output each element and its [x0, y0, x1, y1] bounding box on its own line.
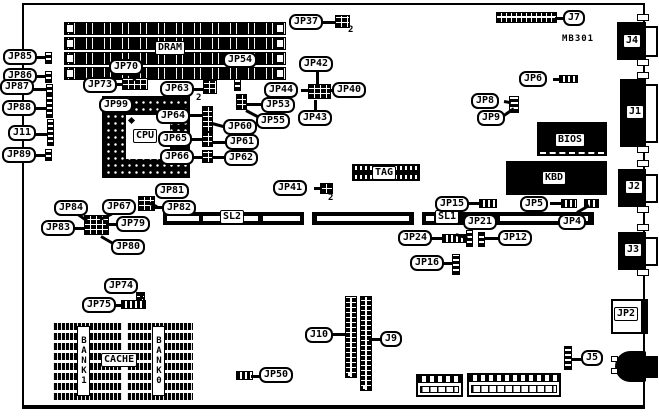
label-jp65: JP65: [158, 131, 192, 147]
label-jp41: JP41: [273, 180, 307, 196]
label-jp75: JP75: [82, 297, 116, 313]
slot-segment: [167, 216, 199, 221]
power-connector-large: [467, 373, 561, 397]
leader-jp74: [140, 293, 143, 299]
jumper-jp54: [234, 79, 241, 91]
jumper-jp85: [45, 52, 52, 64]
label-jp15: JP15: [435, 196, 469, 212]
jumper-jp86: [45, 71, 52, 83]
simm-clip: [276, 24, 284, 33]
label-jp60: JP60: [223, 119, 257, 135]
din-pin-notch: [611, 356, 618, 362]
pin-count-jp63: 2: [196, 93, 201, 103]
connector-j3-port: [644, 237, 658, 266]
power-connector-pins: [469, 375, 559, 382]
bank1-label: BANK1: [77, 326, 90, 396]
label-jp24: JP24: [398, 230, 432, 246]
simm-clip: [66, 24, 74, 33]
jumper-jp16: [452, 254, 460, 275]
power-connector-slots: [471, 385, 557, 393]
board-model-text: MB301: [562, 34, 594, 44]
jumper-jp64-jp60: [202, 106, 213, 132]
pin1-marker: [128, 117, 135, 124]
leader-jp54: [237, 66, 240, 80]
label-jp85: JP85: [3, 49, 37, 65]
header-j11: [47, 119, 54, 146]
simm-slot-1: [64, 22, 286, 35]
slot-segment: [426, 216, 434, 221]
j2-label: J2: [625, 180, 643, 194]
jumper-jp15: [479, 199, 497, 208]
leader-jp5: [550, 202, 562, 205]
kbd-label: KBD: [542, 171, 566, 185]
label-jp70: JP70: [109, 59, 143, 75]
leader-jp16: [444, 262, 453, 265]
label-jp12: JP12: [498, 230, 532, 246]
jumper-jp89: [45, 149, 52, 161]
jumper-jp87: [46, 84, 53, 96]
label-jp73: JP73: [83, 77, 117, 93]
label-jp37: JP37: [289, 14, 323, 30]
label-jp67: JP67: [102, 199, 136, 215]
simm-clip: [276, 69, 284, 78]
power-connector-small: [416, 374, 463, 397]
din-pin-notch: [611, 368, 618, 374]
label-jp64: JP64: [156, 108, 190, 124]
pin-count-jp41: 2: [328, 193, 333, 203]
label-jp80: JP80: [111, 239, 145, 255]
bracket-tab: [637, 206, 649, 213]
power-connector-slots: [420, 386, 459, 393]
simm-clip: [276, 39, 284, 48]
motherboard-diagram: { "board": { "model": "MB301" }, "labels…: [0, 0, 659, 416]
leader-jp41: [314, 187, 322, 190]
leader-jp42: [316, 71, 319, 84]
label-jp79: JP79: [116, 216, 150, 232]
header-j7: [496, 12, 557, 23]
label-jp55: JP55: [256, 113, 290, 129]
jumper-jp53-jp55: [236, 94, 247, 110]
label-jp63: JP63: [160, 81, 194, 97]
label-jp42: JP42: [299, 56, 333, 72]
bracket-tab: [637, 72, 649, 79]
cpu-label: CPU: [133, 129, 157, 143]
label-jp9: JP9: [477, 110, 505, 126]
slot-segment: [263, 216, 300, 221]
label-jp88: JP88: [2, 100, 36, 116]
label-jp43: JP43: [298, 110, 332, 126]
header-j9: [360, 296, 372, 391]
label-jp61: JP61: [225, 134, 259, 150]
simm-clip: [66, 54, 74, 63]
leader-jp44: [301, 89, 309, 92]
jumper-jp88: [46, 96, 53, 118]
label-jp50: JP50: [259, 367, 293, 383]
jumper-jp65-jp61: [202, 132, 213, 147]
j3-label: J3: [624, 243, 642, 257]
label-j9: J9: [380, 331, 402, 347]
tag-label: TAG: [372, 166, 396, 180]
label-jp54: JP54: [223, 52, 257, 68]
leader-jp12: [485, 237, 499, 240]
leader-j10: [331, 333, 346, 336]
label-jp53: JP53: [261, 97, 295, 113]
jumper-jp5: [561, 199, 577, 208]
label-jp21: JP21: [463, 214, 497, 230]
label-jp83: JP83: [41, 220, 75, 236]
slot-segment: [317, 216, 409, 221]
leader-jp37: [321, 21, 336, 24]
leader-j11: [35, 133, 47, 136]
leader-jp15: [468, 202, 480, 205]
bracket-tab: [637, 269, 649, 276]
jumper-jp40-jp42-jp43-jp44: [308, 84, 331, 99]
jp2-edge-strip: [641, 301, 647, 332]
sl2-label: SL2: [220, 210, 244, 224]
simm-clip: [276, 54, 284, 63]
label-jp66: JP66: [160, 149, 194, 165]
label-jp84: JP84: [54, 200, 88, 216]
simm-clip: [66, 39, 74, 48]
label-j7: J7: [563, 10, 585, 26]
j1-label: J1: [626, 105, 644, 119]
bracket-tab: [637, 160, 649, 167]
bank0-label: BANK0: [152, 326, 165, 396]
leader-jp87: [32, 88, 46, 91]
label-jp82: JP82: [162, 200, 196, 216]
label-jp89: JP89: [2, 147, 36, 163]
bracket-tab: [637, 224, 649, 231]
leader-jp6: [553, 78, 561, 81]
label-jp87: JP87: [0, 79, 34, 95]
simm-clip: [66, 69, 74, 78]
bracket-tab: [637, 14, 649, 21]
keyboard-din-connector: [615, 351, 646, 382]
label-jp99: JP99: [99, 97, 133, 113]
bracket-tab: [637, 59, 649, 66]
leader-jp53: [247, 103, 262, 106]
connector-j1-port: [644, 84, 658, 143]
bios-label: BIOS: [555, 133, 585, 147]
keyboard-din-port: [645, 356, 658, 378]
power-connector-pins: [418, 376, 461, 383]
label-jp40: JP40: [332, 82, 366, 98]
label-j11: J11: [8, 125, 36, 141]
dram-label: DRAM: [155, 41, 185, 55]
label-jp62: JP62: [224, 150, 258, 166]
connector-j2-port: [644, 174, 658, 203]
label-jp8: JP8: [471, 93, 499, 109]
label-jp6: JP6: [519, 71, 547, 87]
jumper-jp63: [203, 80, 217, 94]
j4-label: J4: [623, 34, 641, 48]
jumper-jp12: [478, 232, 485, 247]
label-j5: J5: [581, 350, 603, 366]
leader-jp64: [189, 114, 202, 117]
slot-mid: [312, 212, 414, 225]
jumper-jp6: [559, 75, 578, 83]
jp2-label: JP2: [614, 307, 638, 321]
label-jp5: JP5: [520, 196, 548, 212]
sl1-label: SL1: [435, 210, 459, 224]
bracket-tab: [637, 146, 649, 153]
cache-label: CACHE: [101, 353, 137, 367]
label-j10: J10: [305, 327, 333, 343]
jumper-jp75: [121, 300, 146, 309]
label-jp4: JP4: [558, 214, 586, 230]
pin-count-jp37: 2: [348, 25, 353, 35]
label-jp16: JP16: [410, 255, 444, 271]
label-jp44: JP44: [264, 82, 298, 98]
header-j10: [345, 296, 357, 378]
label-jp81: JP81: [155, 183, 189, 199]
label-jp74: JP74: [104, 278, 138, 294]
connector-j4-port: [644, 26, 658, 57]
